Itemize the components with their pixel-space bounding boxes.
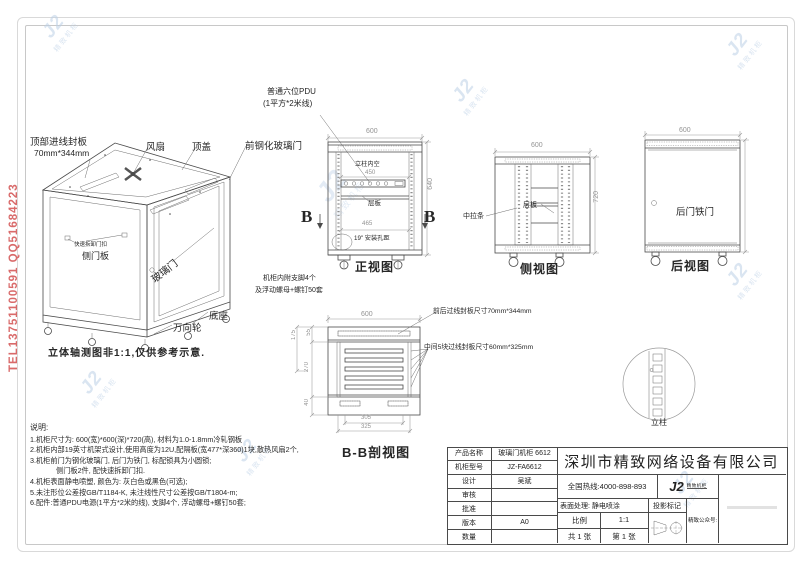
note-line: 5.未注形位公差按GB/T1184-K, 未注线性尺寸公差按GB/T1804-m… (30, 488, 440, 499)
feet-note-line2: 及浮动螺母+螺钉50套 (255, 285, 323, 295)
iso-label-casters: 万向轮 (173, 320, 202, 334)
title-block-row: 机柜型号JZ-FA6612 (447, 461, 557, 475)
section-dim-width: 600 (361, 311, 373, 318)
note-line: 3.机柜前门为钢化玻璃门, 后门为铁门, 标配锁具为小圆锁; (30, 456, 440, 467)
front-dim-inner-width: 450 (365, 169, 375, 176)
section-dim-left-mid: 270 (304, 362, 310, 372)
front-view-caption: 正视图 (355, 258, 394, 275)
notes-block: 说明: 1.机柜尺寸为: 600(宽)*600(深)*720(高), 材料为1.… (30, 423, 440, 509)
section-dim-left-outer: 175 (291, 330, 297, 340)
side-view-drawing (486, 140, 606, 280)
title-block-left-table: 产品名称玻璃门机柜 6612 机柜型号JZ-FA6612 设计吴斌 审核 批准 … (447, 447, 557, 543)
side-dim-height: 720 (593, 191, 600, 203)
row-label: 设计 (447, 475, 492, 488)
projection-symbol-icon (651, 515, 685, 541)
iso-label-top-panel: 顶部进线封板 (30, 134, 87, 148)
iso-label-front-glass-door: 前钢化玻璃门 (245, 138, 302, 152)
scale-value: 1:1 (601, 515, 647, 524)
cable-hole (332, 234, 352, 250)
section-mark-left: B (301, 207, 312, 227)
iso-label-quick-latch: 快速拆卸门扣 (74, 240, 107, 248)
title-block-row: 产品名称玻璃门机柜 6612 (447, 447, 557, 461)
notes-title: 说明: (30, 423, 440, 434)
projection-label: 投影标记 (649, 501, 685, 511)
iso-label-fan: 风扇 (146, 139, 165, 153)
divider (557, 498, 718, 499)
section-dim-left-bottom: 40 (304, 399, 310, 406)
row-label: 审核 (447, 489, 492, 502)
note-line: 4.机柜表面静电喷塑, 颜色为: 灰白色或黑色(可选); (30, 477, 440, 488)
iso-label-side-panel: 侧门板 (82, 249, 109, 262)
divider (557, 512, 686, 513)
iso-caption: 立体轴测图非1:1,仅供参考示意. (48, 344, 205, 359)
front-dim-width: 600 (366, 128, 378, 135)
row-value (492, 502, 557, 515)
row-value (492, 530, 557, 543)
section-note-top-panel: 前后过线封板尺寸70mm*344mm (433, 305, 532, 315)
feet-note-line1: 机柜内附支脚4个 (263, 273, 316, 283)
row-value: 玻璃门机柜 6612 (492, 447, 557, 460)
title-block-row: 审核 (447, 489, 557, 503)
sheet-number: 第 1 张 (601, 531, 647, 542)
front-label-shelf: 层板 (368, 197, 381, 207)
row-label: 数量 (447, 530, 492, 543)
isometric-view-drawing (30, 130, 310, 350)
side-label-shelf: 层板 (523, 200, 537, 210)
rear-view-drawing (633, 126, 793, 271)
front-dim-hole-width: 465 (362, 220, 372, 227)
cable-slots (345, 349, 403, 389)
front-label-inner: 立柱内空 (355, 159, 380, 168)
title-block-row: 设计吴斌 (447, 475, 557, 489)
door-lock (652, 201, 657, 206)
front-dim-height: 640 (427, 178, 434, 190)
pdu-bar (341, 180, 405, 187)
iso-label-base: 底座 (209, 308, 228, 322)
row-label: 产品名称 (447, 447, 492, 460)
side-view-caption: 侧视图 (520, 260, 559, 277)
latch (122, 233, 127, 237)
title-block-row: 批准 (447, 502, 557, 516)
side-dim-width: 600 (531, 142, 543, 149)
row-value: JZ-FA6612 (492, 461, 557, 474)
title-block-row: 版本A0 (447, 516, 557, 530)
section-note-mid-panels: 中间5块过线封板尺寸60mm*325mm (424, 341, 533, 351)
surface-finish: 表面处理: 静电喷涂 (560, 501, 620, 511)
top-cable-slot (150, 196, 189, 214)
rear-view-caption: 后视图 (671, 257, 710, 274)
phone-watermark-text: TEL13751100591 QQ51684223 (8, 114, 20, 372)
note-line: 1.机柜尺寸为: 600(宽)*600(深)*720(高), 材料为1.0-1.… (30, 435, 440, 446)
jz-logo-icon: J2 (669, 479, 683, 494)
sheet-total: 共 1 张 (559, 531, 600, 542)
pdu-note-line1: 普通六位PDU (267, 86, 316, 97)
detail-label-post: 立柱 (651, 417, 667, 428)
iso-label-top-panel-size: 70mm*344mm (34, 148, 89, 158)
side-label-tie: 中拉条 (463, 211, 484, 221)
rear-dim-width: 600 (679, 127, 691, 134)
row-label: 批准 (447, 502, 492, 515)
note-line: 侧门板2件, 配快速拆卸门扣. (30, 466, 440, 477)
engineering-drawing-page: J2精致机柜 J2精致机柜 J2精致机柜 J2精致机柜 J2精致机柜 J2精致机… (0, 0, 800, 565)
row-label: 版本 (447, 516, 492, 529)
scale-label: 比例 (559, 515, 600, 526)
section-dim-left-top: 55 (306, 329, 312, 336)
wechat-label: 精致公众号: (684, 516, 721, 524)
front-label-hole: 19" 安装孔距 (354, 233, 390, 242)
divider (557, 528, 648, 529)
row-value (492, 489, 557, 502)
jz-logo-caption: 精致机柜 (687, 483, 707, 489)
section-dim-bottom-inner: 305 (361, 415, 371, 421)
row-value: A0 (492, 516, 557, 529)
row-value: 吴斌 (492, 475, 557, 488)
qr-placeholder (727, 506, 777, 509)
note-line: 2.机柜内部19英寸机架式设计,使用高度为12U,配隔板(宽477*深360)1… (30, 445, 440, 456)
iso-label-top-cover: 顶盖 (192, 139, 211, 153)
divider (557, 474, 786, 475)
note-line: 6.配件:普通PDU电源(1平方*2米的线), 支脚4个, 浮动螺母+螺钉50套… (30, 498, 440, 509)
hotline: 全国热线:4000-898-893 (559, 481, 655, 492)
row-label: 机柜型号 (447, 461, 492, 474)
company-name: 深圳市精致网络设备有限公司 (559, 451, 784, 472)
title-block-row: 数量 (447, 530, 557, 543)
divider (657, 474, 658, 498)
rear-label-door: 后门铁门 (676, 204, 714, 218)
fan-icon (125, 168, 141, 180)
divider (718, 474, 719, 543)
titleblock-logo: J2 精致机柜 (660, 477, 716, 495)
section-mark-right: B (424, 207, 435, 227)
front-view-drawing (300, 85, 445, 280)
pdu-note-line2: (1平方*2米线) (263, 98, 312, 109)
